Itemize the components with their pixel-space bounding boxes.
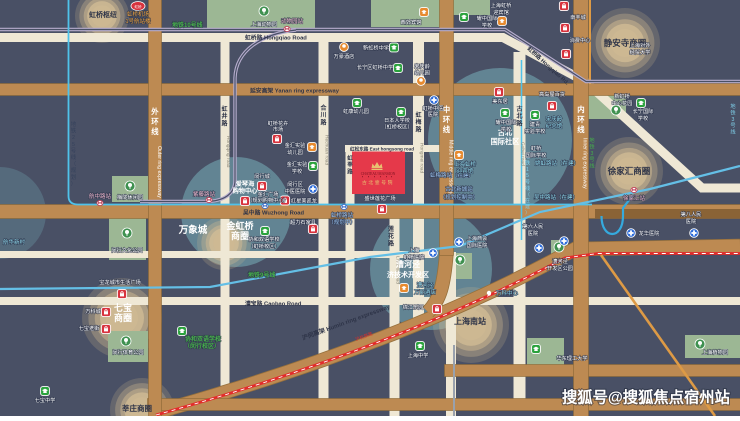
svg-text:耀中国际: 耀中国际 xyxy=(496,118,517,126)
svg-text:建青: 建青 xyxy=(530,120,540,128)
svg-text:（虹桥校区）: （虹桥校区） xyxy=(248,242,279,250)
svg-text:搜狐号@搜狐焦点宿州站: 搜狐号@搜狐焦点宿州站 xyxy=(562,389,730,407)
svg-text:中环线: 中环线 xyxy=(443,105,451,134)
svg-text:虹桥枢纽: 虹桥枢纽 xyxy=(89,10,117,19)
svg-text:幼儿园: 幼儿园 xyxy=(287,148,303,156)
svg-text:古北壹号院: 古北壹号院 xyxy=(362,179,394,186)
svg-text:开发区公园: 开发区公园 xyxy=(547,264,573,272)
svg-text:上海虹桥: 上海虹桥 xyxy=(454,160,477,168)
svg-text:航华新村: 航华新村 xyxy=(3,238,26,246)
svg-text:医院: 医院 xyxy=(428,110,439,118)
svg-text:济技术开发区: 济技术开发区 xyxy=(387,270,429,279)
svg-text:（规划控制中）: （规划控制中） xyxy=(440,193,479,201)
svg-text:学校: 学校 xyxy=(482,21,492,29)
svg-text:协和双语学校: 协和双语学校 xyxy=(185,335,222,343)
svg-text:宝龙城市生活广场: 宝龙城市生活广场 xyxy=(99,278,141,286)
svg-text:地铁9号线: 地铁9号线 xyxy=(248,271,275,279)
svg-text:古北路: 古北路 xyxy=(516,105,523,127)
svg-text:锦江乐园: 锦江乐园 xyxy=(403,303,424,311)
svg-text:虹桥: 虹桥 xyxy=(135,4,142,9)
svg-text:国际社区: 国际社区 xyxy=(491,137,520,146)
svg-text:航中路站: 航中路站 xyxy=(89,192,112,200)
svg-text:闵行文化公园: 闵行文化公园 xyxy=(111,246,142,254)
svg-text:金汇实验: 金汇实验 xyxy=(285,141,307,149)
svg-text:内环线: 内环线 xyxy=(577,105,585,134)
svg-text:漕河泾: 漕河泾 xyxy=(552,257,568,265)
svg-text:外环线: 外环线 xyxy=(150,107,159,136)
svg-text:日本人学校: 日本人学校 xyxy=(384,116,410,124)
svg-text:七宝老街: 七宝老街 xyxy=(79,324,100,332)
svg-text:国际医院: 国际医院 xyxy=(467,241,489,249)
svg-text:古北新城站: 古北新城站 xyxy=(445,185,473,193)
svg-text:长宁国际: 长宁国际 xyxy=(633,107,654,115)
svg-text:新虹桥: 新虹桥 xyxy=(614,92,630,100)
svg-text:闵行区: 闵行区 xyxy=(287,180,303,188)
svg-text:Hongqing road: Hongqing road xyxy=(225,136,231,168)
svg-text:耀中国际: 耀中国际 xyxy=(477,14,498,22)
svg-text:漕宝路 Caobao Road: 漕宝路 Caobao Road xyxy=(244,300,302,308)
svg-text:万象城: 万象城 xyxy=(178,224,208,236)
svg-text:动物园站: 动物园站 xyxy=(281,17,304,25)
svg-text:1号航站楼: 1号航站楼 xyxy=(125,17,151,25)
svg-text:虹康幼儿园: 虹康幼儿园 xyxy=(343,107,369,115)
svg-text:实验学校: 实验学校 xyxy=(525,127,546,135)
svg-text:上海中学: 上海中学 xyxy=(408,351,429,359)
svg-text:CHATEAU MANSION: CHATEAU MANSION xyxy=(361,172,396,176)
svg-text:学校: 学校 xyxy=(292,167,302,175)
svg-text:上海南站: 上海南站 xyxy=(454,316,486,326)
svg-text:南丰城: 南丰城 xyxy=(570,13,586,21)
svg-text:莘庄商圈: 莘庄商圈 xyxy=(122,403,152,413)
svg-text:上海商会: 上海商会 xyxy=(467,234,488,242)
svg-text:金汇广场: 金汇广场 xyxy=(258,190,279,198)
svg-text:Hechuan road: Hechuan road xyxy=(324,135,330,165)
svg-text:合川路: 合川路 xyxy=(319,104,327,126)
svg-text:闵行体育公园: 闵行体育公园 xyxy=(112,348,143,356)
svg-text:经贸大学: 经贸大学 xyxy=(630,48,651,56)
svg-text:吴中路 Wuzhong Road: 吴中路 Wuzhong Road xyxy=(243,209,305,217)
svg-text:紫藤路站: 紫藤路站 xyxy=(193,190,216,198)
svg-text:吴中路站（在建）: 吴中路站（在建） xyxy=(534,193,578,201)
svg-text:姚虹路站（在建）: 姚虹路站（在建） xyxy=(535,159,579,167)
svg-text:购物中心: 购物中心 xyxy=(233,187,259,195)
svg-text:学校: 学校 xyxy=(501,125,511,133)
svg-text:（闵行校区）: （闵行校区） xyxy=(184,342,220,350)
svg-text:新虹桥中学: 新虹桥中学 xyxy=(363,44,389,52)
svg-text:美东居: 美东居 xyxy=(492,97,508,105)
svg-text:红松东路 East hongsong road: 红松东路 East hongsong road xyxy=(350,145,414,152)
svg-text:迎宾馆: 迎宾馆 xyxy=(493,8,509,16)
svg-text:虹井路: 虹井路 xyxy=(221,105,228,127)
svg-text:虹桥医院: 虹桥医院 xyxy=(404,253,426,261)
svg-text:宋庆龄: 宋庆龄 xyxy=(546,115,563,123)
svg-text:虹梅路: 虹梅路 xyxy=(415,111,422,133)
svg-text:医院: 医院 xyxy=(528,229,539,237)
svg-text:漕河泾: 漕河泾 xyxy=(417,281,434,289)
svg-text:商圈: 商圈 xyxy=(231,230,249,241)
svg-text:红星美凯龙: 红星美凯龙 xyxy=(291,197,317,205)
svg-text:地铁10号线: 地铁10号线 xyxy=(172,21,203,29)
svg-text:市场: 市场 xyxy=(273,125,283,133)
svg-text:商圈: 商圈 xyxy=(114,312,132,323)
svg-text:学校: 学校 xyxy=(638,114,648,122)
svg-text:上海: 上海 xyxy=(409,246,419,254)
svg-text:万丽酒店: 万丽酒店 xyxy=(414,288,437,296)
svg-text:消费中心: 消费中心 xyxy=(570,36,591,44)
svg-text:爱琴海: 爱琴海 xyxy=(236,180,255,188)
svg-text:万科城: 万科城 xyxy=(85,307,101,315)
svg-text:第八人民: 第八人民 xyxy=(681,210,702,218)
svg-text:上海动物园: 上海动物园 xyxy=(251,20,277,28)
svg-text:徐家汇商圈: 徐家汇商圈 xyxy=(607,166,651,176)
svg-text:梅陇休闲园: 梅陇休闲园 xyxy=(117,193,143,201)
svg-text:龙华医院: 龙华医院 xyxy=(639,229,661,237)
svg-text:上海对外: 上海对外 xyxy=(630,41,651,49)
svg-text:虹桥路 Hongqiao Road: 虹桥路 Hongqiao Road xyxy=(245,34,307,42)
svg-text:金汇实验: 金汇实验 xyxy=(287,160,309,168)
svg-text:虹桥中医: 虹桥中医 xyxy=(423,104,444,112)
svg-text:万豪酒店: 万豪酒店 xyxy=(334,52,355,60)
svg-text:七宝中学: 七宝中学 xyxy=(35,396,56,404)
svg-text:医院: 医院 xyxy=(686,217,697,225)
svg-text:纪念馆: 纪念馆 xyxy=(546,122,563,130)
svg-text:高岛屋百货: 高岛屋百货 xyxy=(539,90,565,98)
svg-text:国际学校: 国际学校 xyxy=(526,151,547,159)
svg-text:延安高架 Yanan ring expressway: 延安高架 Yanan ring expressway xyxy=(249,87,340,95)
svg-text:上海植物园: 上海植物园 xyxy=(702,348,728,356)
svg-text:（虹桥校区）: （虹桥校区） xyxy=(381,123,412,131)
svg-text:（规划购物中心）: （规划购物中心） xyxy=(247,196,289,204)
svg-text:第六人民: 第六人民 xyxy=(523,222,544,230)
svg-text:万科中心: 万科中心 xyxy=(496,289,519,297)
svg-text:上海虹桥: 上海虹桥 xyxy=(491,1,513,9)
svg-text:迎宾馆: 迎宾馆 xyxy=(457,167,474,175)
svg-text:长宁区虹桥中学: 长宁区虹桥中学 xyxy=(357,63,393,71)
svg-text:（规划中）: （规划中） xyxy=(328,218,356,226)
svg-text:幼儿园: 幼儿园 xyxy=(414,69,430,77)
svg-text:虹桥花卉: 虹桥花卉 xyxy=(268,119,289,127)
svg-text:虹桥: 虹桥 xyxy=(531,144,542,152)
svg-text:七宝: 七宝 xyxy=(114,302,132,313)
svg-text:华东理工大学: 华东理工大学 xyxy=(556,354,587,362)
svg-text:宋庆龄: 宋庆龄 xyxy=(414,62,430,70)
svg-text:Hongmei road: Hongmei road xyxy=(419,143,425,173)
svg-text:虹桥机场: 虹桥机场 xyxy=(127,10,150,18)
svg-text:中医医院: 中医医院 xyxy=(285,187,307,195)
svg-text:金虹桥: 金虹桥 xyxy=(225,220,254,231)
svg-text:地铁25号线（规划）: 地铁25号线（规划） xyxy=(71,120,77,187)
svg-text:莲花路: 莲花路 xyxy=(388,225,395,247)
svg-text:西郊宾馆: 西郊宾馆 xyxy=(401,18,422,26)
svg-text:徐家汇站: 徐家汇站 xyxy=(623,194,646,202)
svg-text:Outer ring expressway: Outer ring expressway xyxy=(156,146,162,198)
svg-text:闵行城: 闵行城 xyxy=(254,172,270,180)
svg-text:Inner ring expressway: Inner ring expressway xyxy=(582,138,588,189)
svg-text:虹莘路: 虹莘路 xyxy=(347,154,353,175)
svg-text:虹桥路站: 虹桥路站 xyxy=(331,211,354,219)
svg-text:盛世莲花广场: 盛世莲花广场 xyxy=(364,194,395,202)
svg-text:协和双语学校: 协和双语学校 xyxy=(248,235,279,243)
